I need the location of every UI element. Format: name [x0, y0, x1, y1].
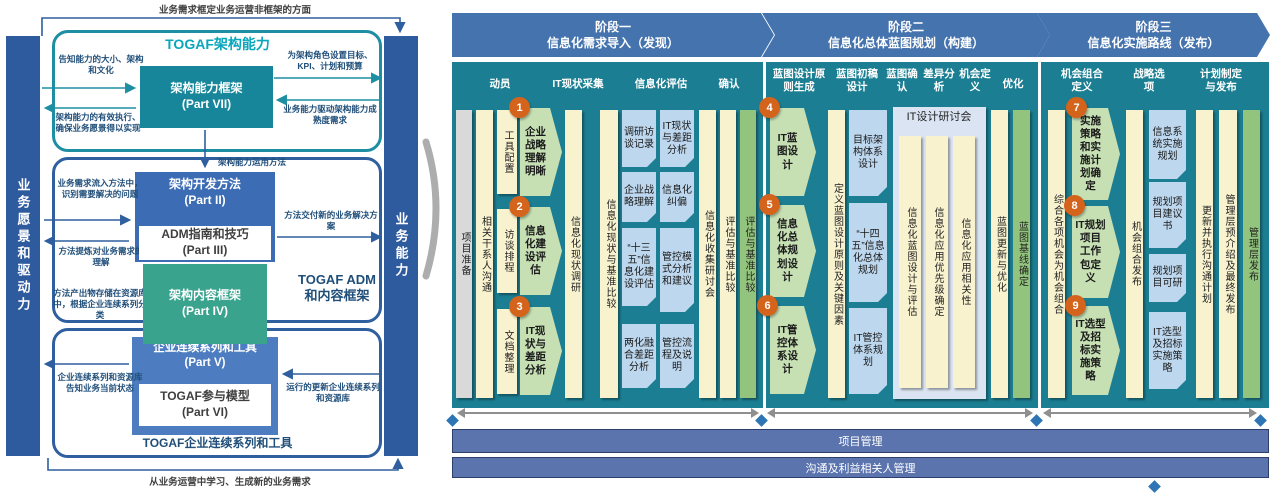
left-bar-business-vision: 业务愿景和驱动力 [6, 36, 40, 456]
adm-section-label: TOGAF ADM和内容框架 [292, 272, 382, 305]
project-management-bar: 项目管理 [452, 429, 1269, 453]
p3-card-system-impl-plan: 信息系统实施规划 [1149, 110, 1186, 179]
p3-col-comm-plan: 更新并执行沟通计划 [1196, 110, 1213, 398]
part6-part: (Part VI) [139, 405, 271, 421]
p2-design-workshop-title: IT设计研讨会 [906, 111, 972, 124]
p1-colhead-assessment: 信息化评估 [622, 78, 700, 91]
p2-colhead-draft: 蓝图初稿设计 [834, 68, 880, 94]
annotation-capability-right-top: 为架构角色设置目标、KPI、计划和预算 [278, 50, 382, 72]
p1-cardB-governance-process: 管控流程及说明 [660, 324, 694, 388]
part3-label: ADM指南和技巧 [139, 227, 271, 243]
p2-col-design-principles: 定义蓝图设计原则及关键因素 [828, 110, 845, 398]
p3-card-feasibility-study: 规划项目可研 [1149, 254, 1186, 302]
p2-wcol-blueprint-eval: 信息化蓝图设计与评估 [899, 136, 921, 388]
p2-colhead-optimize: 优化 [996, 78, 1030, 91]
annotation-adm-right-1: 方法交付新的业务解决方案 [282, 210, 380, 232]
phase3-subtitle: 信息化实施路线（发布） [1037, 35, 1270, 51]
part4-part: (Part IV) [143, 304, 267, 320]
p3-col-mgmt-preview: 管理层预介绍及最终发布 [1219, 110, 1237, 398]
part4-box: 架构内容框架 (Part IV) [143, 264, 267, 344]
step-badge-8: 8 [1064, 195, 1085, 216]
part6-box: TOGAF参与模型 (Part VI) [139, 384, 271, 426]
p1-colhead-mobilize: 动员 [470, 78, 530, 91]
p2-colhead-opportunity: 机会定义 [959, 68, 991, 94]
step-badge-5: 5 [759, 194, 780, 215]
phase3-span-arrow [1046, 412, 1254, 414]
p3-col-portfolio-release: 机会组合发布 [1126, 110, 1143, 398]
part7-label: 架构能力框架 [140, 81, 273, 97]
phase2-title: 阶段二 [762, 19, 1050, 35]
p1-cardA-13th-fiveyear-assess: “十三五”信息化建设评估 [622, 228, 656, 306]
stakeholder-management-bar: 沟通及利益相关人管理 [452, 457, 1269, 478]
step-badge-3: 3 [509, 296, 530, 317]
p1-col-compare-output: 评估与基准比较 [740, 110, 756, 398]
step-badge-6: 6 [757, 295, 778, 316]
phase1-title: 阶段一 [452, 19, 774, 35]
annotation-adm-left-2: 方法提炼对业务需求的理解 [56, 246, 146, 268]
p2-card-it-governance-plan: IT管控体系规划 [849, 308, 887, 394]
right-bar-business-capability: 业务能力 [384, 36, 418, 456]
p1-colhead-confirm: 确认 [703, 78, 755, 91]
p1-col-project-prep: 项目准备 [456, 110, 472, 398]
phase2-header: 阶段二 信息化总体蓝图规划（构建） [762, 13, 1050, 57]
p2-card-target-architecture: 目标架构体系设计 [849, 110, 887, 196]
part7-part: (Part VII) [140, 97, 273, 113]
p2-card-14th-fiveyear-plan: “十四五”信息化总体规划 [849, 203, 887, 302]
annotation-capability-left-top: 告知能力的大小、架构和文化 [58, 54, 144, 76]
p2-wcol-app-relevance: 信息化应用相关性 [953, 136, 975, 388]
continuum-section-label: TOGAF企业连续系列和工具 [90, 436, 345, 451]
annotation-capability-left-bottom: 架构能力的有效执行、确保业务愿景得以实现 [54, 112, 142, 134]
p2-col-blueprint-update: 蓝图更新与优化 [991, 110, 1008, 398]
part7-box: 架构能力框架 (Part VII) [140, 66, 273, 128]
p1-col-status-survey: 信息化现状调研 [565, 110, 582, 398]
p1-task-tool-config: 工具配置 [497, 110, 517, 194]
annotation-capability-right-bottom: 业务能力驱动架构能力成熟度需求 [280, 104, 380, 126]
p1-cardB-correction: 信息化纠偏 [660, 172, 694, 222]
p3-colhead-portfolio: 机会组合定义 [1058, 68, 1106, 94]
p1-col-compare: 评估与基准比较 [720, 110, 736, 398]
part4-label: 架构内容框架 [143, 288, 267, 304]
p1-task-doc-sorting: 文档整理 [497, 309, 517, 394]
p1-task-interview-schedule: 访谈排程 [497, 209, 517, 293]
phase3-header: 阶段三 信息化实施路线（发布） [1037, 13, 1270, 57]
phase1-subtitle: 信息化需求导入（发现） [452, 35, 774, 51]
p1-cardB-governance-analysis: 管控模式分析和建议 [660, 228, 694, 312]
p1-cardA-interview-notes: 调研访谈记录 [622, 110, 656, 167]
annotation-continuum-right: 运行的更新企业连续系列和资源库 [284, 382, 382, 404]
p2-colhead-gap: 差异分析 [923, 68, 955, 94]
p1-colhead-it-survey: IT现状采集 [536, 78, 620, 91]
annotation-method-link: 架构能力运用方法 [212, 157, 292, 168]
p3-card-selection-strategy: IT选型及招标实施策略 [1149, 312, 1186, 389]
p2-colhead-principles: 蓝图设计原则生成 [770, 68, 828, 94]
section-divider-chevron [426, 142, 436, 276]
step-badge-9: 9 [1065, 295, 1086, 316]
p3-col-mgmt-release: 管理层发布 [1243, 110, 1260, 398]
p2-wcol-app-priority: 信息化应用优先级确定 [926, 136, 948, 388]
step-badge-1: 1 [509, 97, 530, 118]
phase2-subtitle: 信息化总体蓝图规划（构建） [762, 35, 1050, 51]
togaf-it-planning-diagram: 业务需求框定业务运营非框架的方面 业务愿景和驱动力 业务能力 TOGAF架构能力… [0, 0, 1270, 501]
step-badge-4: 4 [759, 97, 780, 118]
p3-card-project-proposal: 规划项目建议书 [1149, 182, 1186, 248]
p1-col-status-baseline: 信息化现状与基准比较 [600, 110, 618, 398]
phase2-span-arrow [770, 412, 1030, 414]
phase3-title: 阶段三 [1037, 19, 1270, 35]
p1-cardA-strategy-understanding: 企业战略理解 [622, 172, 656, 222]
part3-box: ADM指南和技巧 (Part III) [139, 226, 271, 260]
part2-label: 架构开发方法 [135, 177, 275, 193]
step-badge-7: 7 [1066, 97, 1087, 118]
p2-col-baseline-confirm: 蓝图基线确定 [1013, 110, 1030, 398]
annotation-adm-left-3: 方法产出物存储在资源库中，根据企业连续系列分类 [52, 288, 148, 321]
part5-part: (Part V) [132, 356, 278, 371]
phase1-span-arrow [460, 412, 756, 414]
p3-col-combine-opportunities: 综合各项机会为机会组合 [1048, 110, 1065, 398]
p2-colhead-confirm: 蓝图确认 [886, 68, 918, 94]
annotation-continuum-left: 企业连续系列和资源库告知业务当前状态 [54, 372, 146, 394]
p1-col-stakeholder-comm: 相关干系人沟通 [476, 110, 493, 398]
p3-colhead-plan-release: 计划制定与发布 [1196, 68, 1246, 94]
p1-cardB-it-gap: IT现状与差距分析 [660, 110, 694, 167]
step-badge-2: 2 [509, 196, 530, 217]
part2-part: (Part II) [135, 193, 275, 209]
milestone-diamond-5 [1148, 480, 1161, 493]
p1-col-collection-workshop: 信息化收集研讨会 [699, 110, 716, 398]
phase1-header: 阶段一 信息化需求导入（发现） [452, 13, 774, 57]
annotation-adm-left-1: 业务需求流入方法中，识别需要解决的问题 [54, 178, 146, 200]
part3-part: (Part III) [139, 243, 271, 259]
p3-colhead-strategy-options: 战略选项 [1133, 68, 1165, 94]
part6-label: TOGAF参与模型 [139, 389, 271, 405]
p1-cardA-integration-gap: 两化融合差距分析 [622, 324, 656, 388]
